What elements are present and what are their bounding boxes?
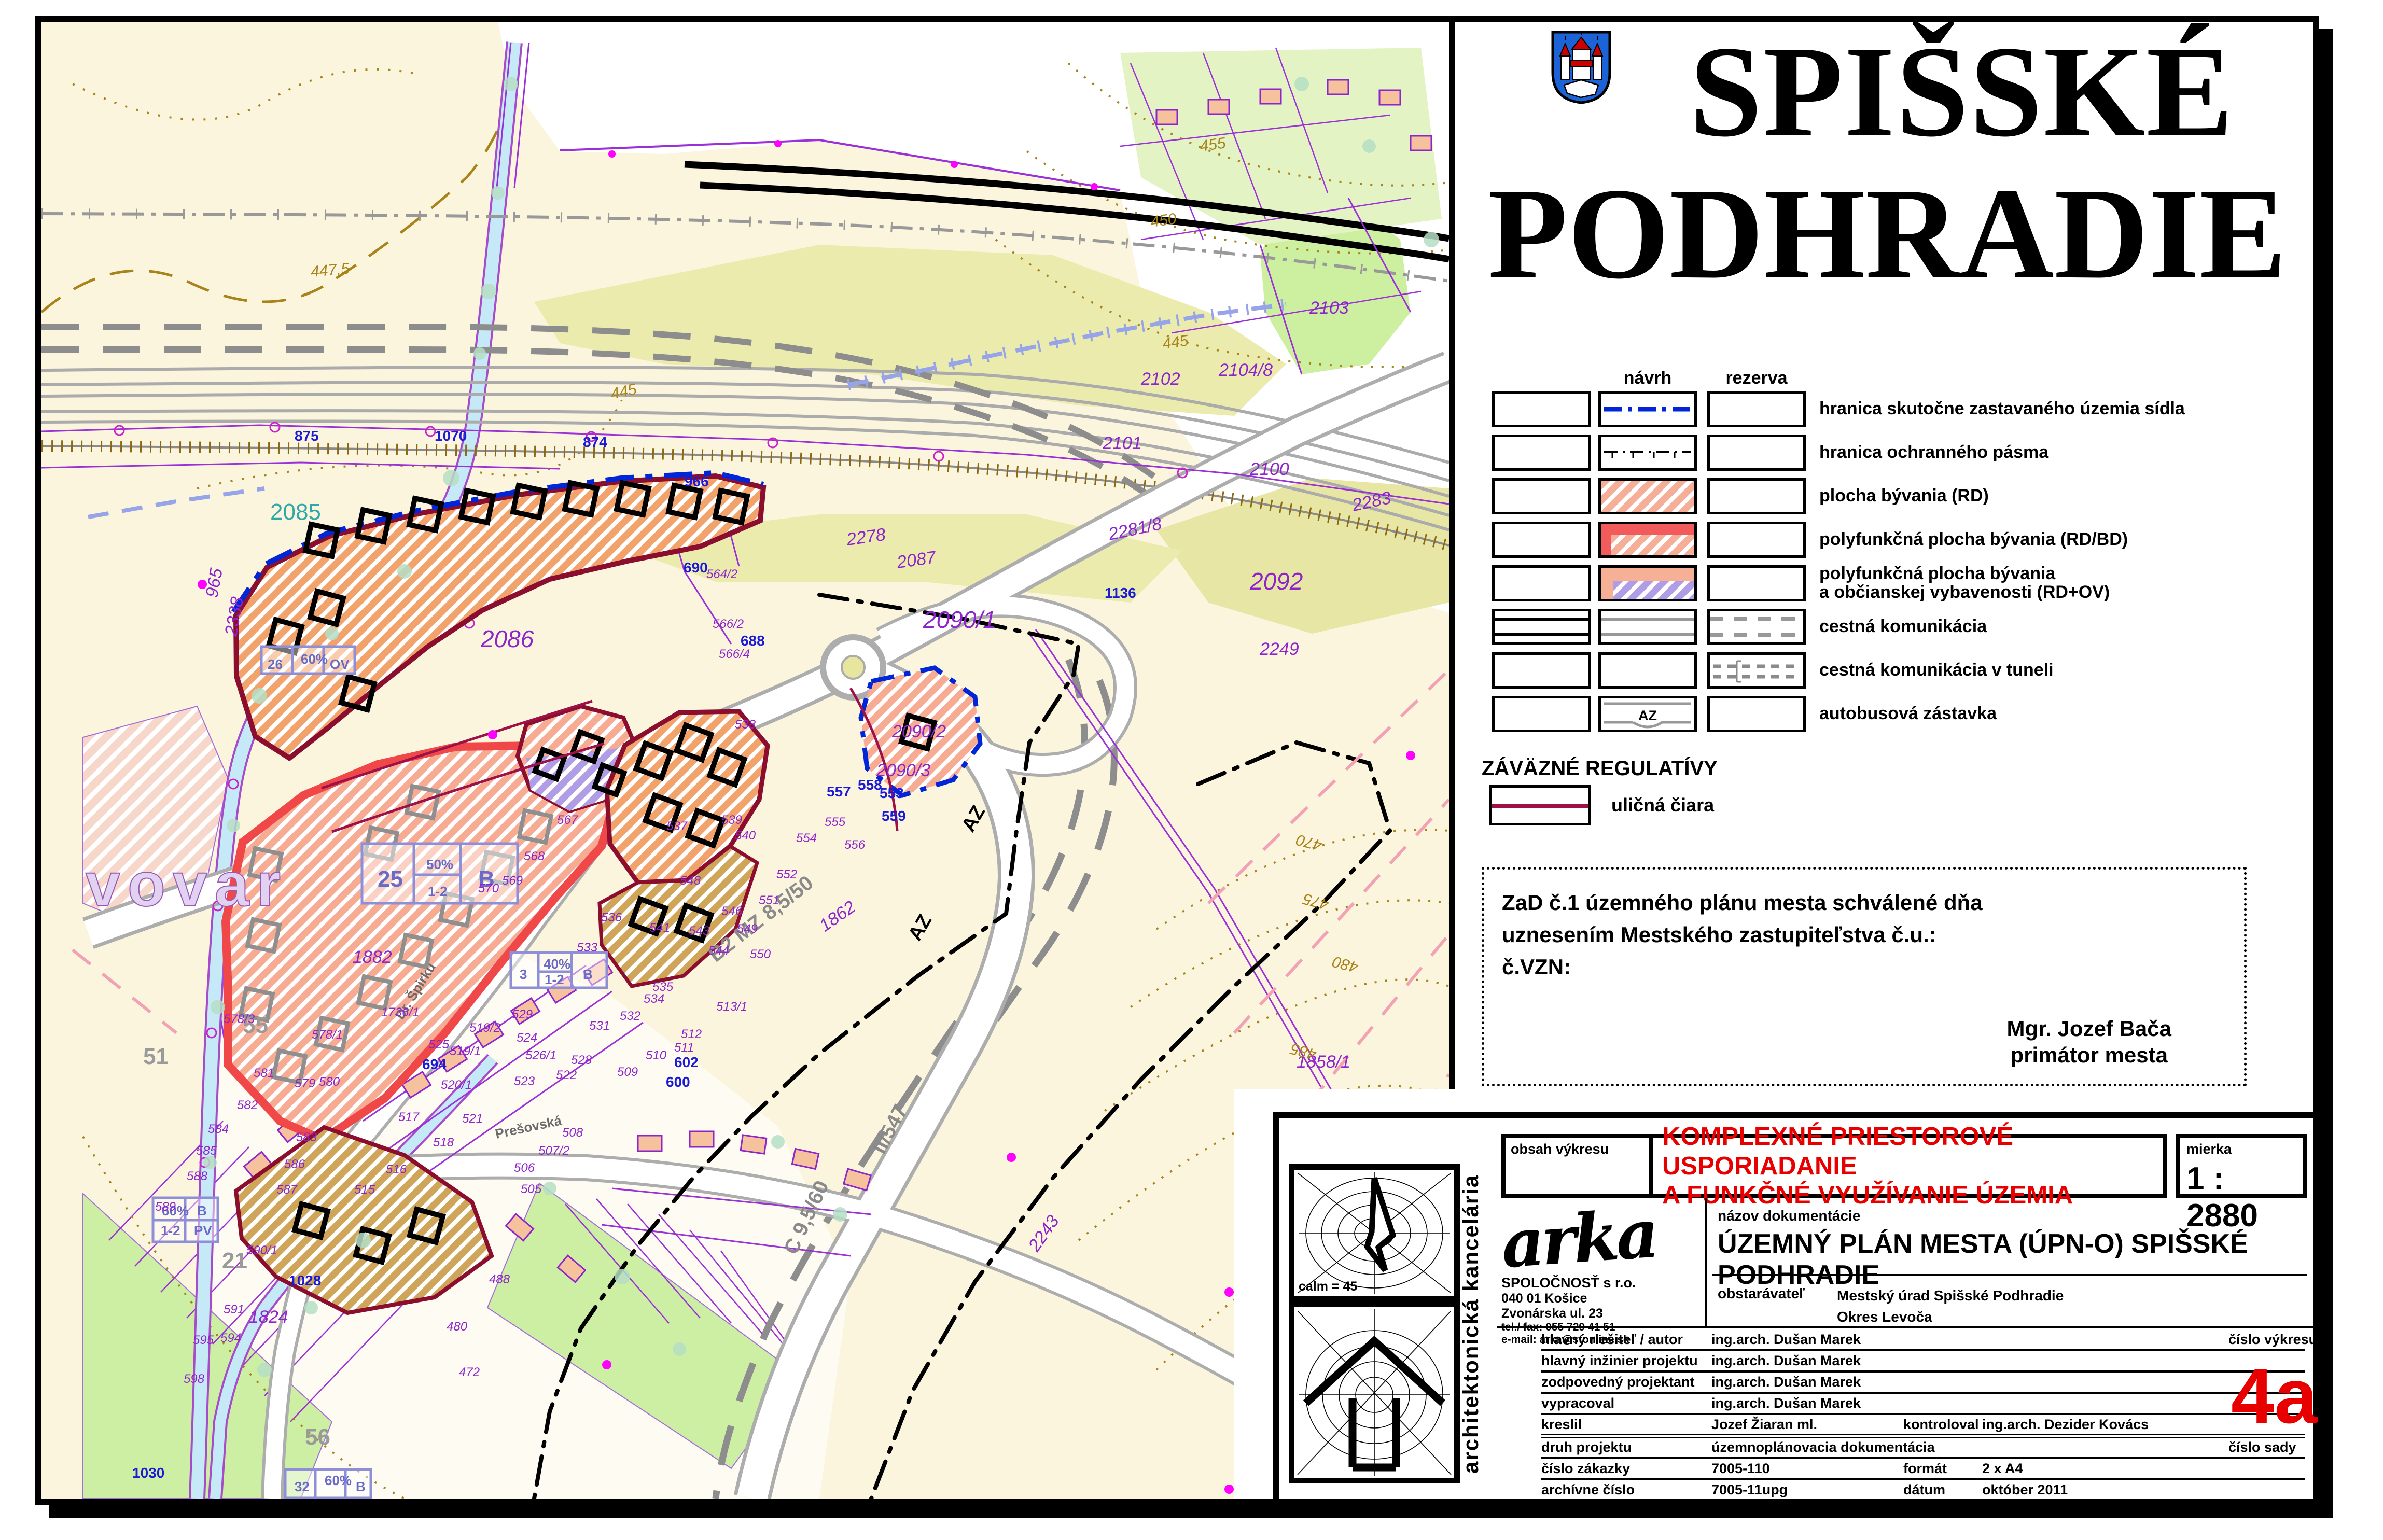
scale-value: 1 : 2880 [2186, 1160, 2296, 1234]
map-label: 690 [684, 559, 708, 576]
map-label: 538 [735, 718, 756, 732]
map-label: 2085 [270, 499, 321, 525]
map-label: 488 [489, 1272, 510, 1286]
legend-symbol-blue-dashdot [1598, 391, 1697, 427]
legend-symbol-road-reserve [1707, 609, 1806, 645]
map-label: 56 [305, 1424, 330, 1450]
map-label: 50% [426, 857, 453, 872]
map-label: 523 [514, 1074, 535, 1088]
map-label: 521 [462, 1112, 483, 1126]
map-label: B [197, 1203, 207, 1219]
map-label: 447,5 [310, 260, 351, 281]
legend-symbol-road-existing [1492, 609, 1591, 645]
legend-row-road: cestná komunikácia [1461, 609, 2313, 645]
map-label: 553 [880, 785, 904, 801]
map-label: 586 [284, 1157, 305, 1171]
map-label: 2103 [1309, 298, 1349, 318]
map-label: 529 [512, 1007, 533, 1021]
map-label: 554 [796, 831, 817, 845]
map-label: 525 [428, 1038, 450, 1052]
legend-label: autobusová zástavka [1819, 705, 1997, 723]
legend-box [1492, 478, 1591, 514]
signatory-role: primátor mesta [2007, 1042, 2171, 1068]
map-label: 587 [276, 1183, 298, 1197]
map-label: 539 [721, 813, 742, 827]
legend-box [1707, 565, 1806, 601]
map-label: 544 [708, 944, 729, 958]
legend-symbol-bus-stop: AZ [1598, 696, 1697, 732]
map-label: 60% [325, 1473, 352, 1488]
legend-symbol-red-hatch [1598, 522, 1697, 558]
legend-label: polyfunkčná plocha bývania (RD/BD) [1819, 530, 2128, 549]
divider [1712, 1274, 2307, 1276]
map-label: 585 [196, 1144, 217, 1158]
company-block: arka SPOLOČNOSŤ s r.o. 040 01 Košice Zvo… [1501, 1206, 1668, 1346]
map-label: 450 [1149, 210, 1177, 231]
map-label: 522 [556, 1068, 577, 1082]
documentation-name-label: názov dokumentácie [1718, 1208, 1860, 1224]
map-label: 555 [825, 815, 846, 829]
binding-regulations-heading: ZÁVÄZNÉ REGULATÍVY [1482, 757, 1718, 780]
map-label: 26 [268, 656, 283, 672]
legend-header-rezerva: rezerva [1707, 368, 1806, 388]
legend-symbol-road-proposed [1598, 609, 1697, 645]
map-label: 550 [750, 947, 771, 961]
legend-row-polyfunctional-rdov: polyfunkčná plocha bývaniaa občianskej v… [1461, 565, 2313, 601]
legend-box [1492, 696, 1591, 732]
map-label: 505 [521, 1182, 542, 1196]
page-background: vovar208620852090/120922087227822492090/… [0, 0, 2383, 1540]
map-label: 558 [858, 777, 882, 793]
row-archive-number: archívne číslo7005-11upg dátumoktóber 20… [1541, 1480, 2305, 1502]
divider [1705, 1198, 1707, 1327]
map-label: 1882 [353, 947, 392, 967]
map-label: 520/1 [441, 1078, 472, 1092]
map-label: 2100 [1249, 459, 1289, 479]
map-label: 472 [459, 1365, 480, 1379]
company-vertical-text: architektonická kancelária [1458, 1168, 1490, 1479]
map-label: 2086 [480, 625, 534, 652]
legend: hranica skutočne zastavaného územia sídl… [1461, 391, 2313, 739]
title-block-rows: hlavný riešiteľ / autoring.arch. Dušan M… [1541, 1330, 2305, 1502]
map-label: vovar [86, 850, 288, 919]
legend-row-bus-stop: AZ autobusová zástavka [1461, 696, 2313, 732]
legend-row-housing-rd: plocha bývania (RD) [1461, 478, 2313, 514]
map-label: 3 [520, 967, 527, 982]
map-label: 455 [1199, 134, 1227, 155]
map-label: 582 [237, 1098, 258, 1112]
title-block: calm = 45 architektonická kancelária ark… [1273, 1112, 2313, 1499]
map-label: 559 [882, 808, 906, 824]
map-label: 543 [689, 924, 710, 938]
drawing-content-cell: obsah výkresu [1501, 1134, 1653, 1198]
legend-symbol-tunnel [1707, 652, 1806, 689]
documentation-name: ÚZEMNÝ PLÁN MESTA (ÚPN-O) SPIŠSKÉ PODHRA… [1718, 1228, 2297, 1291]
legend-label: polyfunkčná plocha bývaniaa občianskej v… [1819, 565, 2110, 601]
map-label: 552 [776, 867, 797, 881]
map-label: 578/1 [312, 1028, 343, 1042]
map-label: 516 [386, 1163, 407, 1177]
scale-label: mierka [2186, 1141, 2296, 1157]
signature: Mgr. Jozef Bača primátor mesta [2007, 1016, 2171, 1068]
map-label: 21 [222, 1248, 247, 1273]
map-label: 874 [583, 434, 607, 450]
map-label: 579 [295, 1076, 315, 1090]
map-label: 517 [398, 1110, 420, 1124]
map-label: 511 [674, 1041, 694, 1055]
map-label: 598 [184, 1372, 205, 1386]
map-label: 480 [447, 1320, 468, 1334]
map-label: 570 [478, 881, 499, 895]
compass-note: calm = 45 [1299, 1279, 1357, 1294]
map-label: 556 [844, 838, 866, 852]
map-label: 506 [514, 1161, 535, 1175]
legend-box [1492, 435, 1591, 471]
drawing-content-title: KOMPLEXNÉ PRIESTOROVÉ USPORIADANIE A FUN… [1649, 1134, 2167, 1198]
drawing-content-label: obsah výkresu [1511, 1141, 1609, 1157]
client-value: Mestský úrad Spišské Podhradie Okres Lev… [1837, 1285, 2064, 1327]
town-title-line1: SPIŠSKÉ [1617, 26, 2307, 157]
map-label: 1070 [435, 428, 467, 444]
map-label: 1-2 [161, 1223, 180, 1238]
legend-headers: návrh rezerva [1461, 368, 2313, 389]
row-responsible-designer: zodpovedný projektanting.arch. Dušan Mar… [1541, 1373, 2305, 1394]
company-logo: arka [1499, 1200, 1670, 1278]
row-drawn-by: kreslilJozef Žiaran ml. kontrolovaling.a… [1541, 1415, 2305, 1438]
map-label: 564/2 [706, 567, 737, 581]
map-label: 581 [254, 1066, 274, 1080]
legend-row-built-boundary: hranica skutočne zastavaného územia sídl… [1461, 391, 2313, 427]
legend-label: hranica ochranného pásma [1819, 443, 2048, 462]
map-label: 541 [649, 921, 670, 935]
legend-row-protection-boundary: hranica ochranného pásma [1461, 435, 2313, 471]
map-label: 589 [155, 1200, 176, 1214]
map-label: 1028 [289, 1272, 321, 1289]
map-label: 584 [208, 1122, 229, 1136]
town-title-line2: PODHRADIE [1465, 168, 2310, 299]
legend-row-polyfunctional-rdbd: polyfunkčná plocha bývania (RD/BD) [1461, 522, 2313, 558]
map-label: 590/1 [246, 1243, 277, 1257]
drawing-content-line1: KOMPLEXNÉ PRIESTOROVÉ USPORIADANIE [1662, 1122, 2163, 1181]
map-label: 600 [666, 1074, 690, 1090]
map-label: 694 [422, 1056, 447, 1072]
map-label: 2090/2 [891, 722, 946, 741]
map-label: 518 [433, 1136, 454, 1150]
map-label: 540 [735, 829, 756, 843]
map-label: B [583, 967, 593, 982]
map-label: 595 [193, 1333, 214, 1347]
map-label: 1030 [132, 1465, 164, 1481]
approval-box: ZaD č.1 územného plánu mesta schválené d… [1482, 867, 2247, 1086]
drawing-number: 4a [2231, 1357, 2318, 1435]
map-label: B [356, 1479, 366, 1494]
map-label: 591 [224, 1303, 244, 1317]
map-label: 1136 [1105, 585, 1136, 601]
company-street: Zvonárska ul. 23 [1501, 1306, 1668, 1321]
map-label: 40% [544, 956, 570, 972]
legend-box [1707, 696, 1806, 732]
map-label: 534 [644, 992, 664, 1006]
map-label: 2249 [1259, 639, 1299, 659]
map-label: 536 [601, 911, 622, 925]
legend-box [1707, 435, 1806, 471]
map-label: 2104/8 [1218, 360, 1273, 380]
map-label: 533 [577, 941, 598, 955]
map-label: 526/1 [525, 1048, 556, 1062]
row-chief-author: hlavný riešiteľ / autoring.arch. Dušan M… [1541, 1330, 2305, 1351]
map-label: 567 [557, 813, 579, 827]
map-label: 688 [741, 633, 765, 649]
legend-label: hranica skutočne zastavaného územia sídl… [1819, 400, 2185, 418]
title-block-top-row: obsah výkresu KOMPLEXNÉ PRIESTOROVÉ USPO… [1501, 1134, 2307, 1198]
approval-line2: uznesením Mestského zastupiteľstva č.u.: [1502, 922, 2244, 947]
map-label: 32 [295, 1479, 310, 1494]
drawing-sheet: vovar208620852090/120922087227822492090/… [35, 16, 2319, 1505]
map-label: 549 [737, 922, 758, 936]
map-label: 1-2 [545, 972, 564, 987]
company-zip-city: 040 01 Košice [1501, 1291, 1668, 1306]
legend-label: cestná komunikácia v tuneli [1819, 661, 2054, 680]
map-label: 531 [589, 1019, 610, 1033]
map-label: 594 [220, 1331, 241, 1345]
row-project-type: druh projektuúzemnoplánovacia dokumentác… [1541, 1438, 2305, 1459]
legend-symbol-black-dashdot [1598, 435, 1697, 471]
map-label: 568 [524, 849, 545, 863]
legend-box [1707, 478, 1806, 514]
row-chief-engineer: hlavný inžinier projektuing.arch. Dušan … [1541, 1351, 2305, 1373]
legend-row-tunnel: cestná komunikácia v tuneli [1461, 652, 2313, 689]
map-label: 1824 [249, 1307, 288, 1327]
map-label: PV [194, 1223, 212, 1238]
legend-box [1707, 391, 1806, 427]
map-label: 535 [652, 980, 674, 994]
legend-label: cestná komunikácia [1819, 618, 1987, 636]
drawing-content-line2: A FUNKČNÉ VYUŽÍVANIE ÚZEMIA [1662, 1181, 2163, 1210]
map-label: 2092 [1249, 568, 1303, 595]
north-arrow-diagram: calm = 45 [1289, 1164, 1460, 1302]
map-label: 25 [378, 866, 403, 892]
map-label: 1736/1 [381, 1005, 419, 1019]
map-label: 546 [721, 904, 743, 918]
map-label: 557 [827, 783, 851, 800]
map-label: 583 [296, 1130, 317, 1144]
map-label: 519/2 [469, 1021, 500, 1035]
map-label: 2101 [1102, 433, 1142, 453]
map-label: 532 [620, 1009, 640, 1023]
map-label: 551 [759, 893, 779, 907]
drawing-number-label: číslo výkresu [2228, 1332, 2317, 1348]
map-label: 548 [680, 874, 701, 888]
street-line-label: uličná čiara [1611, 794, 1714, 816]
row-prepared-by: vypracovaling.arch. Dušan Marek [1541, 1394, 2305, 1415]
map-label: 566/2 [713, 617, 744, 631]
map-label: 507/2 [538, 1144, 569, 1158]
legend-box [1492, 391, 1591, 427]
map-label: 524 [517, 1031, 537, 1045]
street-line-symbol [1489, 785, 1591, 825]
legend-box [1707, 522, 1806, 558]
row-order-number: číslo zákazky7005-110 formát2 x A4 [1541, 1459, 2305, 1480]
map-label: 602 [674, 1054, 699, 1070]
map-label: 569 [502, 874, 523, 888]
arrow-diagram [1289, 1301, 1460, 1483]
map-label: 580 [319, 1075, 340, 1089]
map-label: 2102 [1140, 369, 1180, 389]
map-label: 2090/3 [876, 761, 930, 780]
town-crest [1550, 29, 1613, 105]
map-label: 509 [617, 1065, 638, 1079]
map-label: 588 [187, 1169, 208, 1183]
legend-label: plocha bývania (RD) [1819, 487, 1989, 506]
map-label: 51 [143, 1044, 169, 1069]
legend-box [1492, 565, 1591, 601]
legend-box [1598, 652, 1697, 689]
scale-cell: mierka 1 : 2880 [2176, 1134, 2307, 1198]
divider [1497, 1326, 2313, 1328]
map-label: 60% [301, 651, 328, 667]
map-label: 445 [1161, 332, 1189, 353]
legend-box [1492, 522, 1591, 558]
map-label: 513/1 [716, 1000, 747, 1014]
map-label: 537 [666, 819, 688, 833]
map-label: 510 [646, 1048, 667, 1062]
legend-symbol-orange-hatch [1598, 478, 1697, 514]
set-number-label: číslo sady [2228, 1439, 2296, 1455]
map-label: 566/4 [719, 647, 750, 661]
map-label: 578/3 [224, 1012, 255, 1026]
map-label: 1-2 [428, 884, 448, 899]
client-label: obstarávateľ [1718, 1285, 1805, 1302]
map-label: 508 [562, 1126, 583, 1140]
approval-line3: č.VZN: [1502, 955, 2244, 979]
map-label: 515 [354, 1183, 375, 1197]
map-label: 519/1 [450, 1044, 481, 1058]
map-label: 528 [571, 1053, 592, 1067]
approval-line1: ZaD č.1 územného plánu mesta schválené d… [1502, 890, 2244, 915]
map-label: 2090/1 [923, 606, 996, 633]
legend-symbol-purple-hatch [1598, 565, 1697, 601]
legend-box [1492, 652, 1591, 689]
street-line-row: uličná čiara [1489, 785, 1714, 825]
map-label: 512 [681, 1027, 702, 1041]
legend-header-navrh: návrh [1598, 368, 1697, 388]
signatory-name: Mgr. Jozef Bača [2007, 1016, 2171, 1042]
map-label: OV [330, 656, 350, 672]
svg-text:AZ: AZ [1638, 708, 1657, 723]
map-label: 875 [295, 428, 319, 444]
map-label: 966 [685, 473, 709, 489]
